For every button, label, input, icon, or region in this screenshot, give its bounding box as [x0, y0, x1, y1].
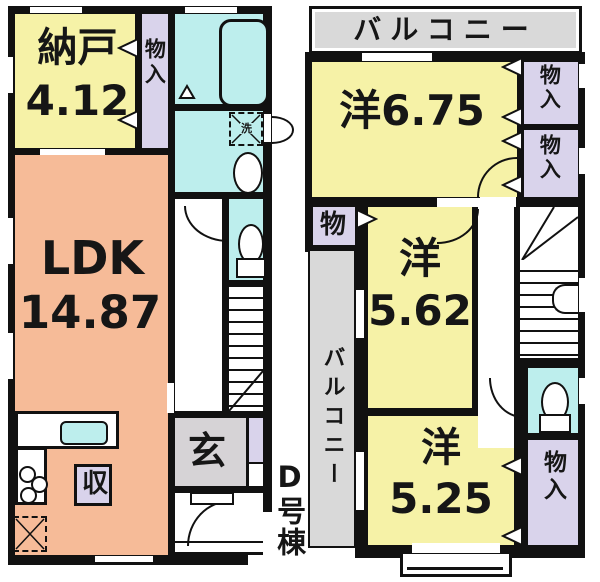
porch-step-line-2 [175, 552, 263, 555]
storage-box-label: 収 [82, 471, 108, 498]
room-nando-label: 納戸 [25, 28, 130, 69]
door-washroom-right [264, 114, 271, 142]
window-nando-left [7, 57, 13, 93]
closet-2f-b-label: 物入 [538, 134, 559, 182]
stairs-2f [520, 207, 578, 358]
door-562-opening [437, 198, 481, 207]
room-ldk-label: LDK [25, 235, 160, 282]
window-ldk-left-2 [7, 333, 13, 379]
room-562-label: 洋 [368, 238, 472, 281]
room-675-label: 洋6.75 [312, 90, 512, 133]
closet-door-marker [117, 38, 139, 58]
kitchen-sink [60, 421, 108, 445]
window-arc-stairs [552, 284, 578, 314]
window-2f-right-2 [579, 148, 585, 174]
closet-door-marker [501, 175, 523, 195]
closet-2f-small-label: 物 [320, 212, 346, 239]
porch-step-line-1 [175, 541, 263, 543]
window-525-bottom [412, 543, 500, 553]
closet-door-marker [501, 107, 523, 127]
balcony-top-label: バルコニー [312, 16, 579, 45]
washroom-sink [233, 152, 263, 194]
exterior-corner-cut [248, 512, 274, 565]
balcony-side-label: バルコニー [320, 346, 342, 491]
closet-2f-a-label: 物入 [538, 64, 559, 112]
window-1f-top-right [185, 7, 237, 13]
window-2f-right-1 [579, 64, 585, 88]
room-ldk-area: 14.87 [15, 290, 165, 336]
washing-machine: 洗 [229, 112, 263, 146]
balcony-side: バルコニー [308, 249, 356, 548]
bay-window [400, 551, 512, 577]
shoe-closet-lower [249, 464, 263, 486]
building-unit-label: D号棟 [274, 460, 304, 558]
window-stairs-right [579, 278, 585, 312]
storage-box: 収 [74, 464, 112, 506]
door-arc-washroom-exterior [272, 116, 294, 144]
closet-door-marker [501, 131, 523, 151]
balcony-top: バルコニー [309, 6, 582, 54]
refrigerator-space [13, 516, 47, 552]
closet-door-marker [501, 526, 523, 546]
room-nando-area: 4.12 [25, 80, 130, 123]
window-balcony-525 [356, 452, 364, 510]
closet-door-marker [356, 209, 378, 229]
closet-2f-c-label: 物入 [540, 450, 563, 504]
window-ldk-bottom [95, 556, 153, 562]
toilet-1f-tank [236, 258, 266, 278]
bathtub [219, 19, 269, 107]
entrance-label: 玄 [188, 432, 226, 471]
opening-ldk-genkan [167, 383, 174, 413]
room-525-area: 5.25 [368, 478, 514, 521]
stove-burner-3 [20, 487, 37, 504]
closet-1f-label: 物入 [143, 38, 164, 88]
stairs-1f-landing-lines [229, 287, 263, 411]
opening-nando-ldk [40, 149, 105, 155]
shoe-closet [249, 418, 263, 462]
window-675-top [362, 53, 432, 61]
closet-door-marker [501, 57, 523, 77]
window-balcony-562 [356, 290, 364, 338]
closet-door-marker [501, 456, 523, 476]
closet-door-marker [117, 110, 139, 130]
window-ldk-left-1 [7, 218, 13, 264]
stairs-winder-lines [520, 207, 578, 262]
bath-floor-marker [178, 84, 196, 100]
room-562-area: 5.62 [368, 290, 472, 333]
entrance-door-leaf [190, 492, 234, 505]
floor-plan: 洗 収 納戸 4.12 物入 LDK 14.87 玄 バルコニー バルコニー [0, 0, 600, 582]
washer-label: 洗 [240, 123, 253, 134]
room-525-label: 洋 [368, 428, 514, 469]
window-toilet-2f-right [579, 378, 585, 404]
window-1f-top-left [30, 7, 82, 13]
toilet-2f-tank [539, 414, 571, 433]
door-675-opening [480, 197, 516, 207]
